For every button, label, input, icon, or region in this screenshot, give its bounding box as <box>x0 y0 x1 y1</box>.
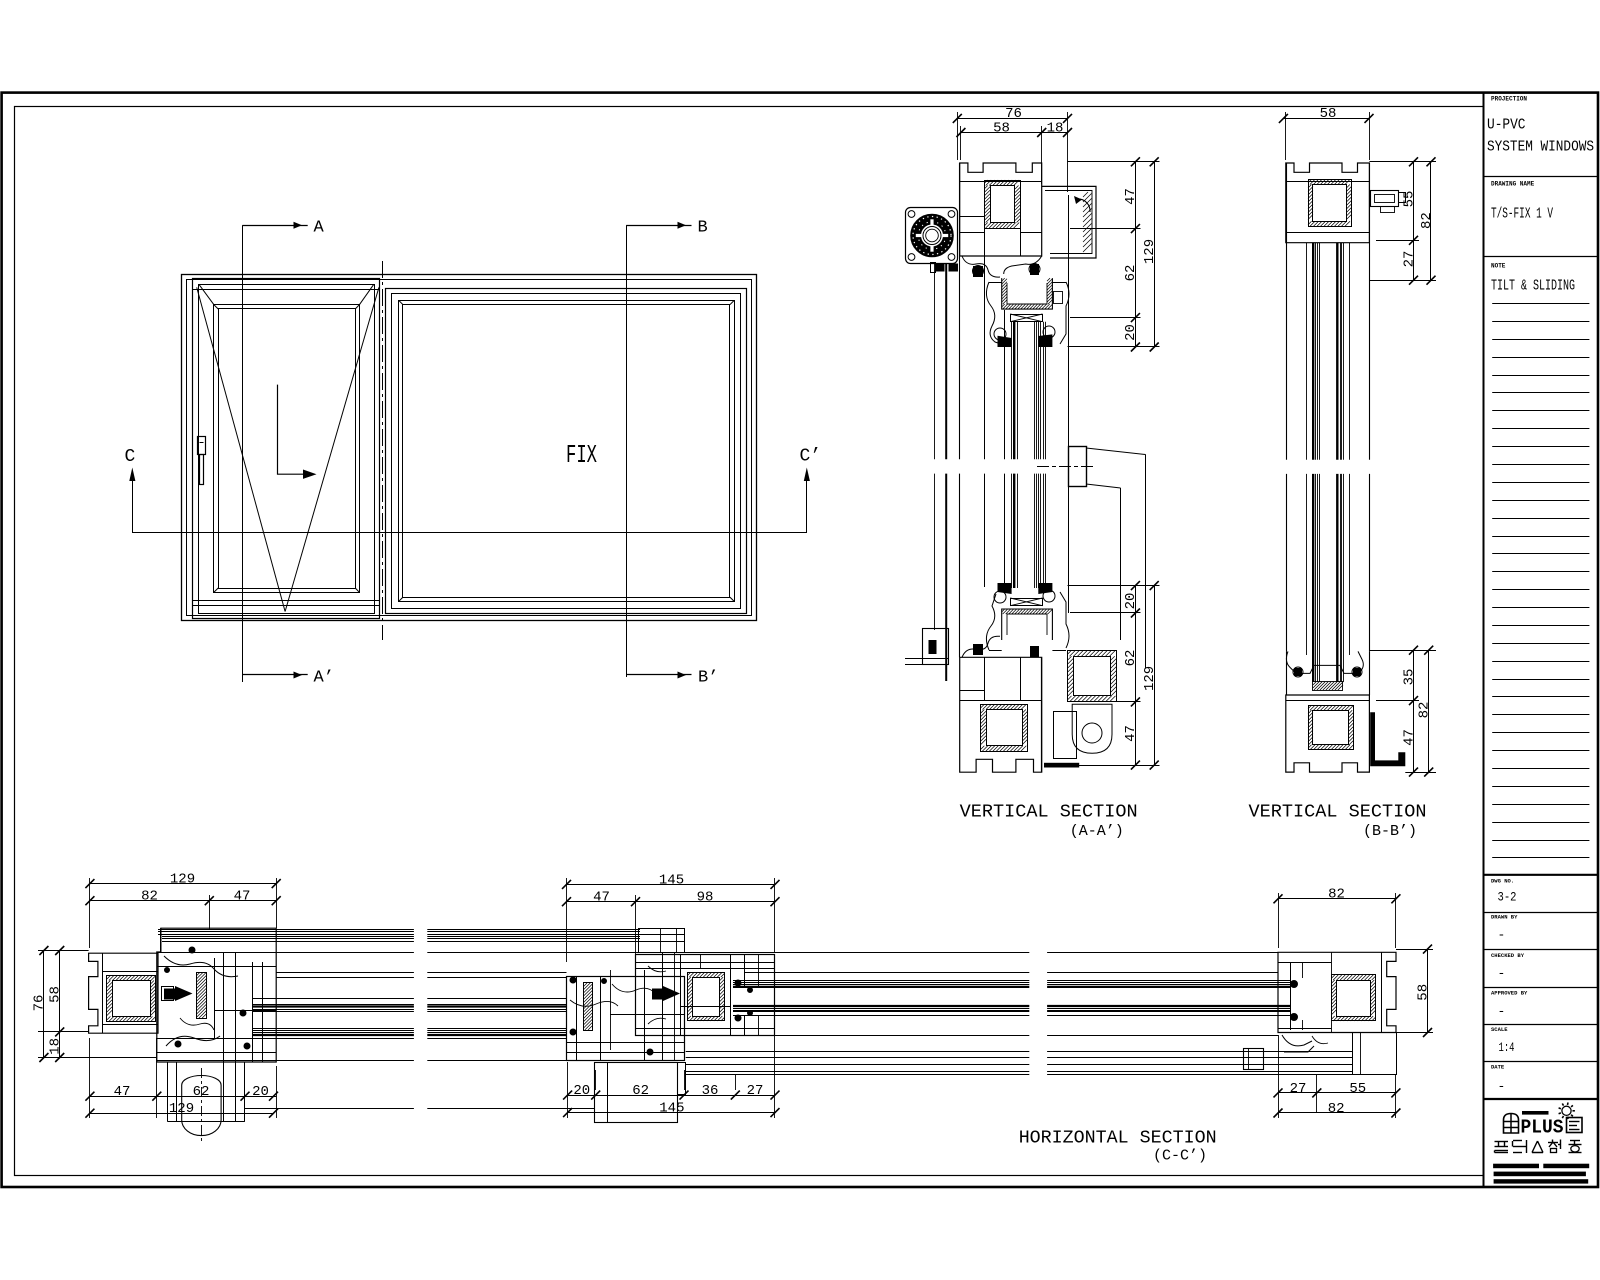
svg-text:B: B <box>698 219 708 238</box>
svg-text:DRAWN BY: DRAWN BY <box>1491 914 1518 921</box>
svg-text:A’: A’ <box>314 668 334 687</box>
svg-text:1:4: 1:4 <box>1499 1040 1515 1055</box>
svg-text:3-2: 3-2 <box>1498 890 1517 905</box>
svg-text:129: 129 <box>169 1101 194 1117</box>
svg-text:DATE: DATE <box>1491 1064 1505 1071</box>
svg-text:58: 58 <box>1320 106 1337 122</box>
svg-text:129: 129 <box>1142 239 1158 264</box>
svg-text:DWG NO.: DWG NO. <box>1491 878 1514 885</box>
svg-text:TILT & SLIDING: TILT & SLIDING <box>1491 278 1575 295</box>
svg-text:62: 62 <box>632 1083 649 1099</box>
svg-text:47: 47 <box>1401 729 1417 746</box>
svg-text:129: 129 <box>1142 666 1158 691</box>
svg-text:36: 36 <box>702 1083 719 1099</box>
svg-text:129: 129 <box>170 872 195 888</box>
svg-text:82: 82 <box>1417 702 1433 719</box>
svg-text:T/S-FIX 1 V: T/S-FIX 1 V <box>1491 206 1553 223</box>
svg-text:-: - <box>1498 1079 1506 1094</box>
svg-text:47: 47 <box>593 890 610 906</box>
svg-text:58: 58 <box>1415 984 1431 1001</box>
svg-text:PLUS: PLUS <box>1521 1117 1564 1139</box>
svg-text:DRAWING NAME: DRAWING NAME <box>1491 181 1535 188</box>
svg-text:FIX: FIX <box>566 440 597 470</box>
svg-text:(B-B’): (B-B’) <box>1363 823 1417 840</box>
svg-text:U-PVC: U-PVC <box>1487 117 1526 134</box>
svg-text:-: - <box>1498 966 1506 981</box>
svg-text:27: 27 <box>1401 251 1417 268</box>
svg-text:58: 58 <box>48 986 64 1003</box>
svg-text:47: 47 <box>1123 725 1139 742</box>
svg-text:CHECKED BY: CHECKED BY <box>1491 952 1525 959</box>
svg-text:SCALE: SCALE <box>1491 1026 1508 1033</box>
svg-text:C’: C’ <box>800 447 822 467</box>
svg-text:27: 27 <box>1290 1081 1307 1097</box>
svg-text:62: 62 <box>1123 650 1139 667</box>
svg-text:82: 82 <box>1328 1101 1345 1117</box>
svg-text:82: 82 <box>1419 212 1435 229</box>
svg-text:(A-A’): (A-A’) <box>1070 823 1124 840</box>
svg-text:HORIZONTAL SECTION: HORIZONTAL SECTION <box>1019 1128 1217 1149</box>
svg-text:62: 62 <box>1123 265 1139 282</box>
svg-text:20: 20 <box>252 1084 269 1100</box>
svg-text:SYSTEM WINDOWS: SYSTEM WINDOWS <box>1487 139 1594 156</box>
svg-text:55: 55 <box>1401 191 1417 208</box>
svg-text:B’: B’ <box>698 668 718 687</box>
svg-text:58: 58 <box>993 120 1010 136</box>
svg-text:-: - <box>1498 928 1506 943</box>
svg-text:27: 27 <box>747 1083 764 1099</box>
svg-text:VERTICAL SECTION: VERTICAL SECTION <box>960 802 1138 823</box>
svg-text:47: 47 <box>234 889 251 905</box>
svg-text:A: A <box>314 219 325 238</box>
svg-text:(C-C’): (C-C’) <box>1153 1148 1207 1165</box>
svg-text:18: 18 <box>48 1038 64 1055</box>
svg-text:62: 62 <box>193 1084 210 1100</box>
svg-text:47: 47 <box>1123 188 1139 205</box>
svg-text:20: 20 <box>1123 593 1139 610</box>
svg-text:35: 35 <box>1401 669 1417 686</box>
svg-text:82: 82 <box>141 889 158 905</box>
svg-text:145: 145 <box>659 872 684 888</box>
svg-text:20: 20 <box>1123 324 1139 341</box>
svg-text:98: 98 <box>697 890 714 906</box>
svg-text:76: 76 <box>32 995 48 1012</box>
svg-text:C: C <box>125 447 136 467</box>
svg-text:145: 145 <box>659 1101 684 1117</box>
svg-text:PROJECTION: PROJECTION <box>1491 96 1527 103</box>
svg-text:APPROVED BY: APPROVED BY <box>1491 990 1528 997</box>
svg-text:-: - <box>1498 1004 1506 1019</box>
svg-text:NOTE: NOTE <box>1491 262 1506 269</box>
svg-text:18: 18 <box>1047 120 1064 136</box>
svg-text:VERTICAL SECTION: VERTICAL SECTION <box>1249 802 1427 823</box>
svg-text:55: 55 <box>1349 1081 1366 1097</box>
svg-text:20: 20 <box>573 1083 590 1099</box>
svg-text:82: 82 <box>1328 887 1345 903</box>
svg-text:47: 47 <box>114 1084 131 1100</box>
